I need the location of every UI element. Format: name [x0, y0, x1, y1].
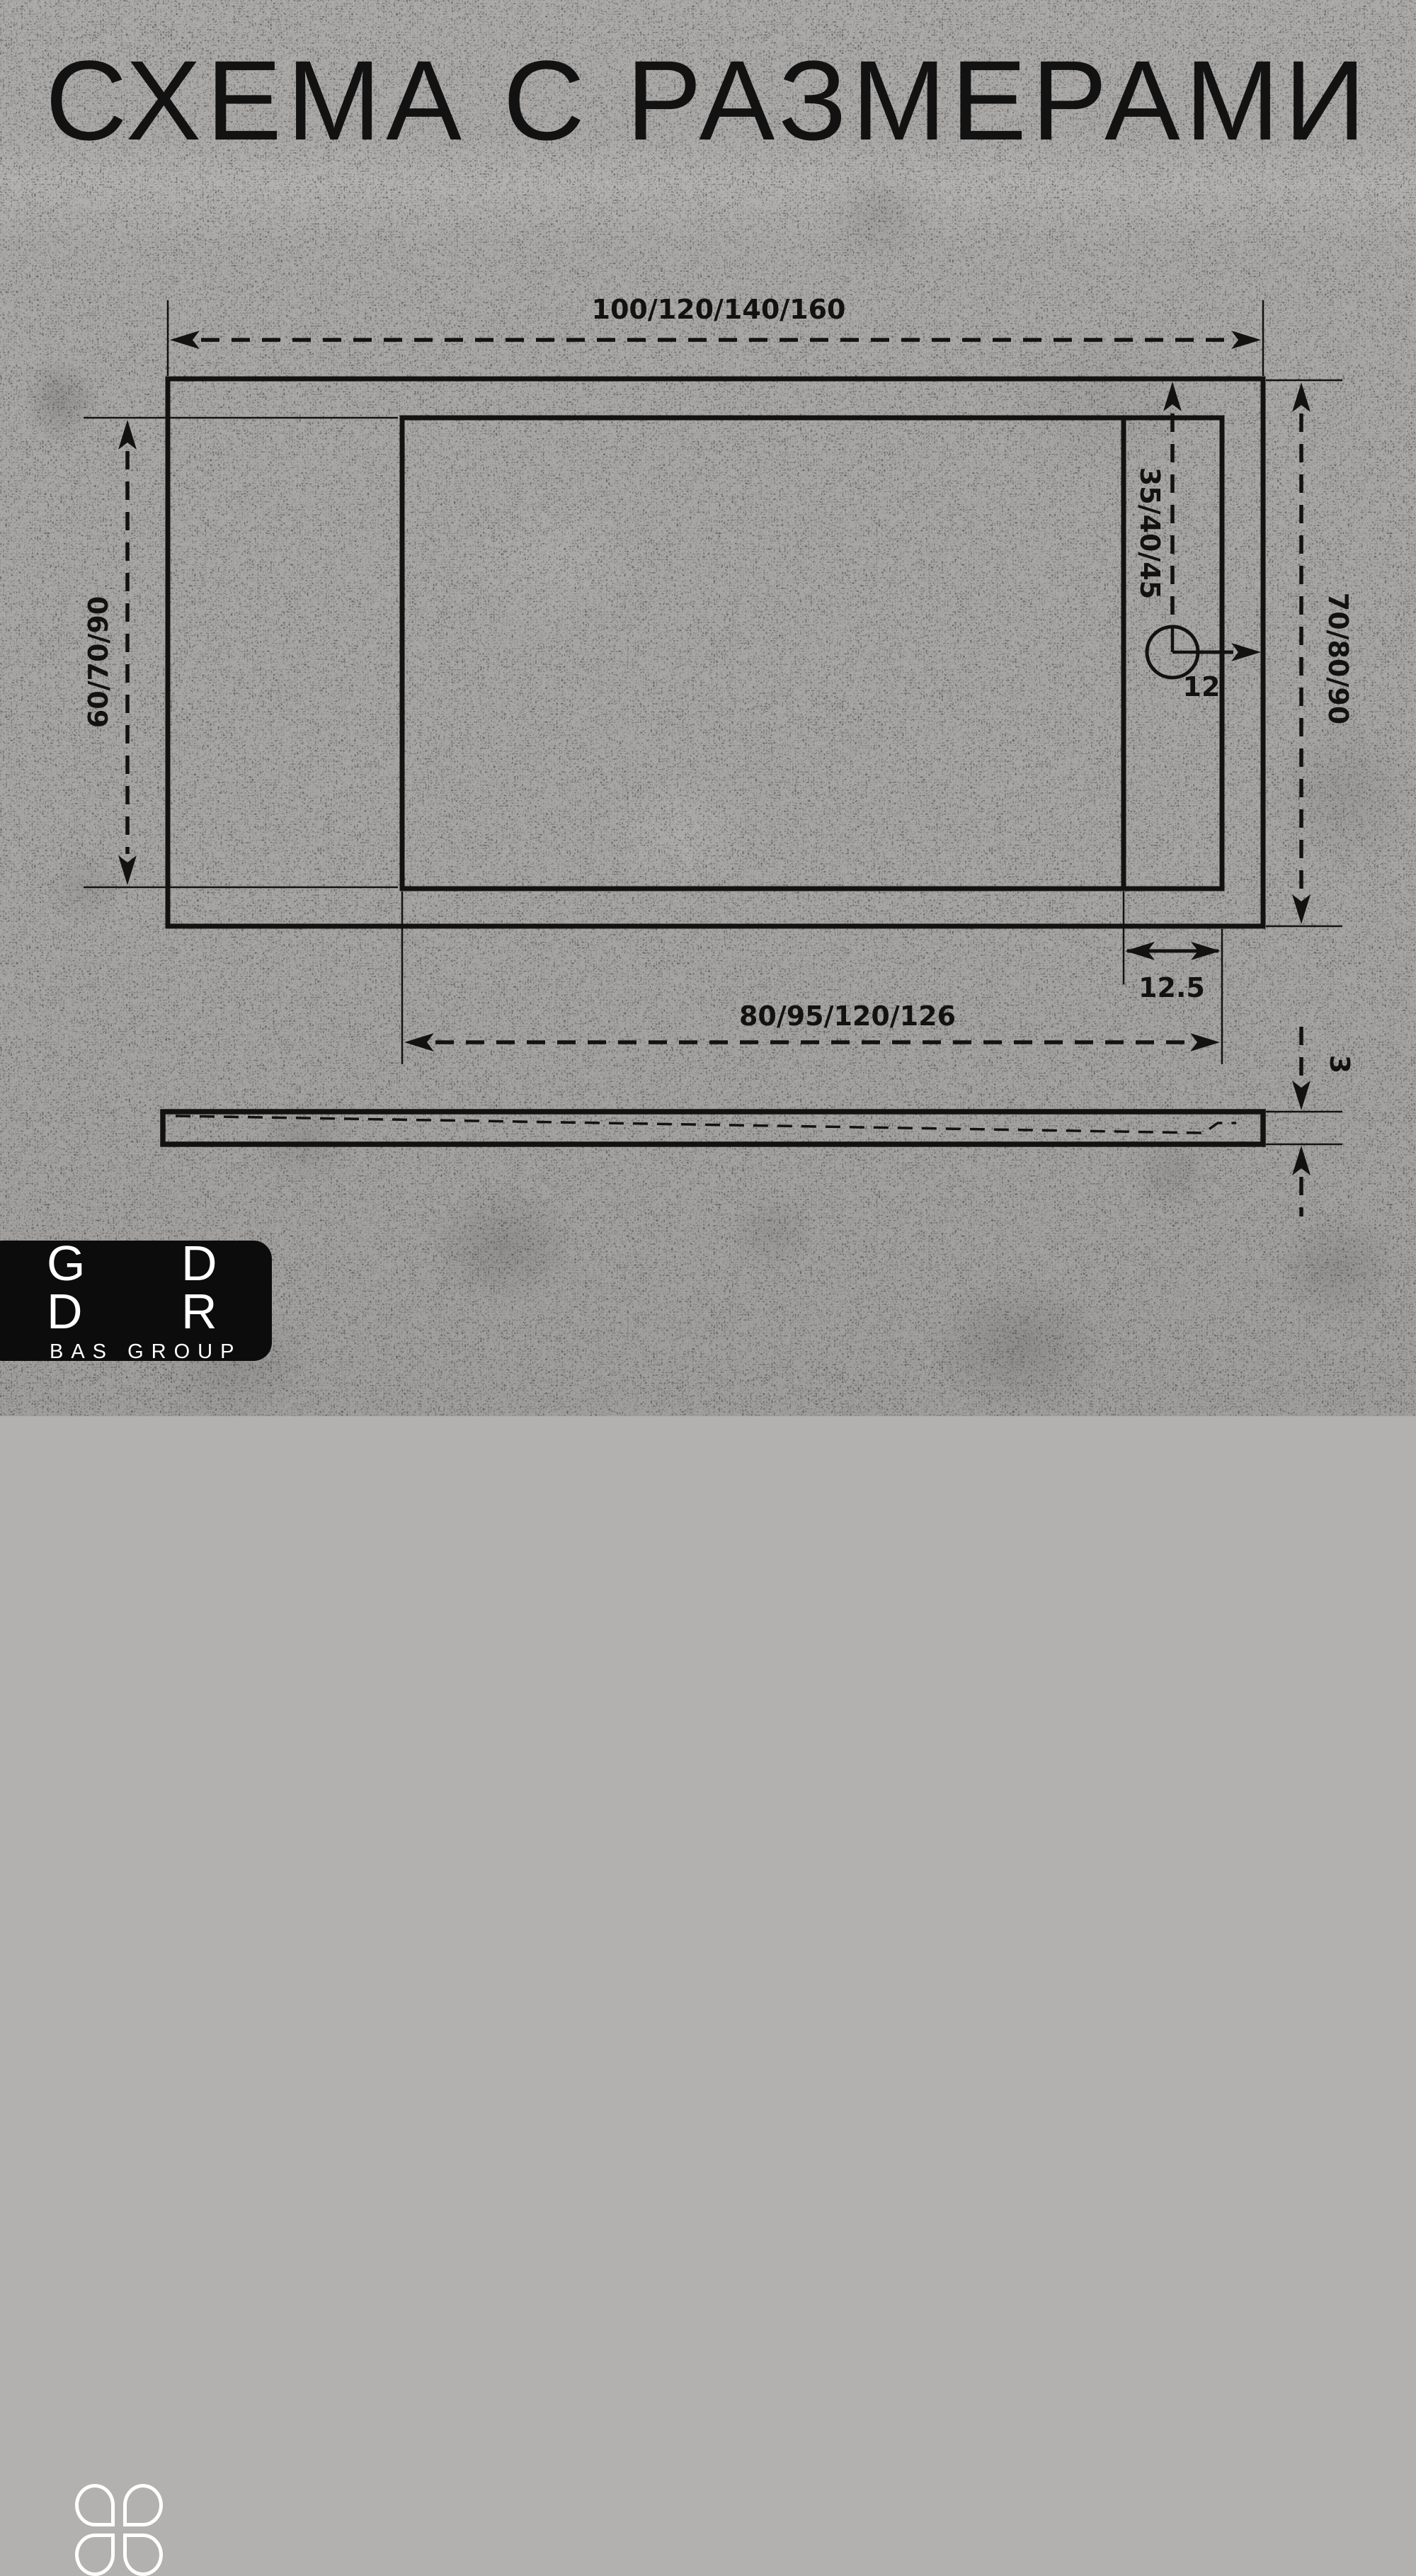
overall-width-label: 100/120/140/160 [592, 294, 846, 325]
logo-petal-icon [75, 2484, 115, 2526]
dim-drain-strip: 12.5 [1124, 891, 1222, 1064]
logo-petal-icon [75, 2534, 115, 2576]
logo-subtitle: BAS GROUP [50, 1340, 241, 1364]
thickness-label: 3 [1324, 1055, 1355, 1073]
dim-basin-width: 80/95/120/126 [402, 891, 1220, 1064]
dim-overall-height: 70/80/90 [1266, 380, 1354, 926]
drain-strip-label: 12.5 [1138, 972, 1205, 1003]
basin-width-label: 80/95/120/126 [739, 1001, 956, 1032]
drain-offset-label: 35/40/45 [1134, 467, 1165, 599]
side-profile-outline [163, 1112, 1263, 1144]
drain-leader-arrow [1231, 643, 1261, 661]
logo-letter-r: R [181, 1287, 217, 1336]
drain-diameter-label: 12 [1183, 671, 1221, 702]
basin-height-label: 60/70/90 [83, 596, 114, 728]
poster: СХЕМА С РАЗМЕРАМИ 12 100/120/140/160 [0, 0, 1416, 1416]
logo-petal-icon [123, 2484, 163, 2526]
dimension-diagram: 12 100/120/140/160 60/70/90 70/80/ [0, 0, 1416, 1416]
logo-petal-icon [123, 2534, 163, 2576]
basin-outline [402, 418, 1222, 889]
overall-height-label: 70/80/90 [1323, 593, 1354, 724]
tray-outline [168, 379, 1263, 926]
side-profile-slope-line [176, 1116, 1236, 1133]
dim-overall-width: 100/120/140/160 [168, 294, 1263, 376]
logo-letter-d2: D [47, 1287, 83, 1336]
logo-letter-g: G [47, 1238, 85, 1288]
logo-letter-d1: D [181, 1238, 217, 1288]
dim-basin-height: 60/70/90 [83, 418, 398, 887]
dim-thickness: 3 [1266, 1027, 1355, 1216]
